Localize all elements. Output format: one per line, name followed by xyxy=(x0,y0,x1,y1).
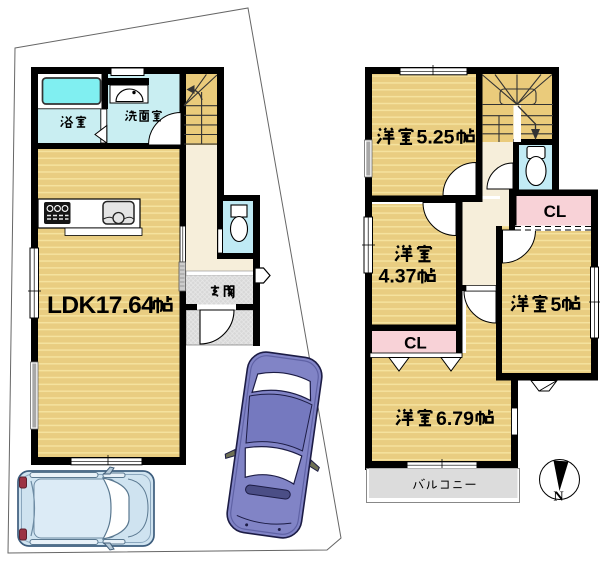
svg-text:CL: CL xyxy=(544,202,567,221)
svg-text:4.37: 4.37 xyxy=(379,266,417,288)
svg-text:5.25: 5.25 xyxy=(417,127,455,149)
svg-text:LDK17.64: LDK17.64 xyxy=(47,292,155,319)
svg-text:N: N xyxy=(553,490,563,505)
svg-text:5: 5 xyxy=(551,294,562,316)
svg-text:CL: CL xyxy=(404,334,427,353)
svg-text:6.79: 6.79 xyxy=(436,408,474,430)
